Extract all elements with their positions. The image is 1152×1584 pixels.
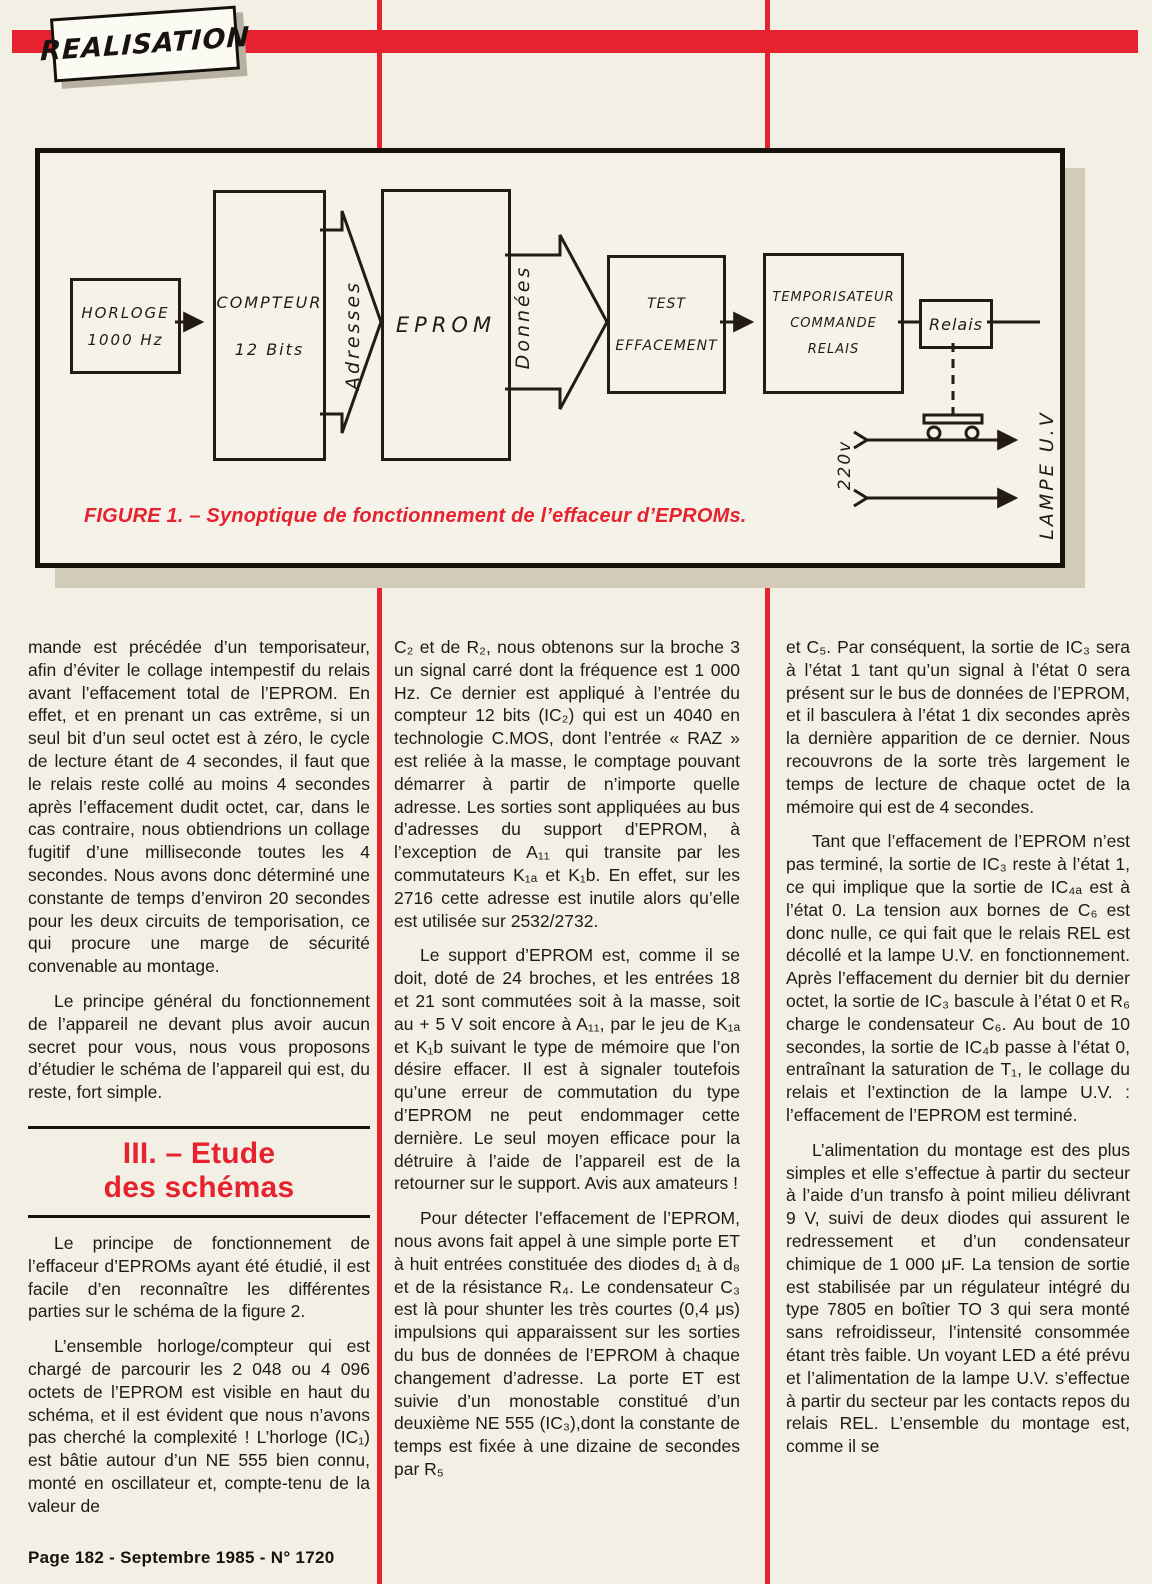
- paragraph: Le support d’EPROM est, comme il se doit…: [394, 944, 740, 1195]
- figure1-caption: FIGURE 1. – Synoptique de fonctionnement…: [84, 505, 747, 528]
- section-heading: III. – Etude des schémas: [28, 1126, 370, 1218]
- page-footer: Page 182 - Septembre 1985 - N° 1720: [28, 1548, 334, 1568]
- paragraph: C₂ et de R₂, nous obtenons sur la broche…: [394, 636, 740, 932]
- block-horloge-line2: 1000 Hz: [87, 331, 163, 349]
- bus-label-donnees: Données: [510, 247, 536, 387]
- paragraph: L’alimentation du montage est des plus s…: [786, 1139, 1130, 1458]
- block-eprom: EPROM: [381, 189, 511, 461]
- heading-rule-bottom: [28, 1215, 370, 1218]
- block-eprom-line1: EPROM: [396, 313, 496, 337]
- block-relais: Relais: [919, 299, 993, 349]
- block-compteur: COMPTEUR 12 Bits: [213, 190, 326, 461]
- block-horloge: HORLOGE 1000 Hz: [70, 278, 181, 374]
- block-test-line1: TEST: [647, 296, 686, 312]
- magazine-page: REALISATION: [0, 0, 1152, 1584]
- block-tempo-line2: COMMANDE: [790, 316, 877, 331]
- relay-contact-icon: [924, 415, 982, 439]
- block-test-line2: EFFACEMENT: [615, 338, 717, 354]
- section-heading-line2: des schémas: [28, 1171, 370, 1205]
- realisation-badge: REALISATION: [50, 6, 240, 83]
- figure1-panel: HORLOGE 1000 Hz COMPTEUR 12 Bits EPROM T…: [35, 148, 1065, 568]
- paragraph: Pour détecter l’effacement de l’EPROM, n…: [394, 1207, 740, 1481]
- block-temporisateur: TEMPORISATEUR COMMANDE RELAIS: [763, 253, 904, 394]
- block-relais-line1: Relais: [929, 315, 983, 334]
- paragraph: Le principe général du fonctionnement de…: [28, 990, 370, 1104]
- paragraph: mande est précédée d’un temporisateur, a…: [28, 636, 370, 978]
- article-column-3: et C₅. Par conséquent, la sortie de IC₃ …: [786, 636, 1130, 1470]
- block-compteur-line2: 12 Bits: [235, 340, 304, 359]
- wire-label-220v: 220v: [832, 420, 858, 510]
- block-test-effacement: TEST EFFACEMENT: [607, 255, 726, 394]
- paragraph: et C₅. Par conséquent, la sortie de IC₃ …: [786, 636, 1130, 818]
- figure1-connectors: [40, 153, 1060, 563]
- section-heading-line1: III. – Etude: [28, 1137, 370, 1171]
- block-horloge-line1: HORLOGE: [81, 304, 169, 322]
- badge-label: REALISATION: [40, 21, 251, 67]
- block-tempo-line1: TEMPORISATEUR: [772, 290, 894, 305]
- wire-label-lampe-uv: LAMPE U.V: [1034, 400, 1060, 550]
- article-column-2: C₂ et de R₂, nous obtenons sur la broche…: [394, 636, 740, 1493]
- block-compteur-line1: COMPTEUR: [217, 293, 323, 312]
- block-tempo-line3: RELAIS: [808, 342, 859, 357]
- paragraph: Le principe de fonctionnement de l’effac…: [28, 1232, 370, 1323]
- paragraph: Tant que l’effacement de l’EPROM n’est p…: [786, 830, 1130, 1126]
- article-column-1: mande est précédée d’un temporisateur, a…: [28, 636, 370, 1530]
- paragraph: L’ensemble horloge/compteur qui est char…: [28, 1335, 370, 1517]
- bus-label-adresses: Adresses: [340, 260, 366, 410]
